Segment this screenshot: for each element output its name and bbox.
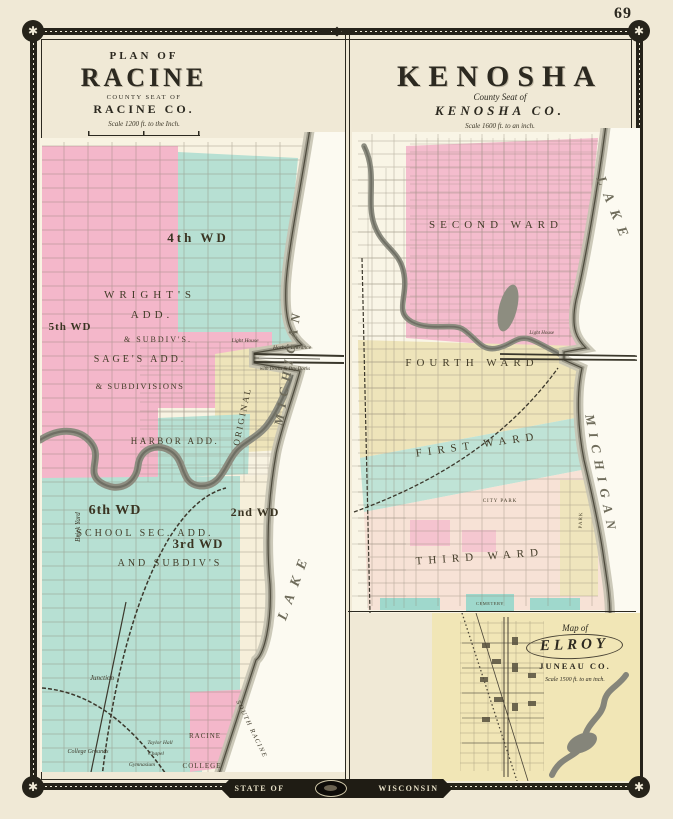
block <box>494 697 503 702</box>
rosette-glyph: ✱ <box>28 25 38 37</box>
label-sages-add: SAGE'S ADD. <box>94 354 187 365</box>
block <box>492 659 501 664</box>
racine-scale-text: Scale 1200 ft. to the Inch. <box>44 120 244 128</box>
racine-plan-of: PLAN OF <box>44 50 244 62</box>
pier-south <box>254 362 344 363</box>
elroy-title: ELROY <box>526 632 624 660</box>
label-racine-college-2: COLLEGE <box>183 762 222 770</box>
page-number: 69 <box>614 5 632 23</box>
label-harbor-add: HARBOR ADD. <box>131 436 220 446</box>
elroy-title-block: Map of ELROY JUNEAU CO. Scale 1500 ft. t… <box>516 623 634 683</box>
label-ward2: 2nd WD <box>231 505 280 519</box>
racine-title-block: PLAN OF RACINE COUNTY SEAT OF RACINE CO.… <box>44 50 244 136</box>
elroy-scale-text: Scale 1500 ft. to an inch. <box>516 677 634 683</box>
label-ward4: 4th WD <box>167 230 228 245</box>
racine-county-seat: COUNTY SEAT OF <box>44 94 244 101</box>
label-cemetery: CEMETERY <box>476 601 504 606</box>
kenosha-scale-text: Scale 1600 ft. to an inch. <box>385 122 615 130</box>
racine-title: RACINE <box>44 63 244 93</box>
label-park: PARK <box>579 511 585 528</box>
label-brick-yard: Brick Yard <box>74 512 82 542</box>
rosette-glyph: ✱ <box>634 781 644 793</box>
elroy-map-of: Map of <box>516 623 634 633</box>
kenosha-title-block: KENOSHA County Seat of KENOSHA CO. Scale… <box>385 60 615 130</box>
state-seal-icon <box>315 780 347 797</box>
label-wrights: WRIGHT'S <box>104 289 196 301</box>
atlas-page: ✱ ✱ ✱ ✱ ◆ 69 PLAN OF RACINE COUNTY SEAT … <box>0 0 673 819</box>
label-light-house: Light House <box>528 331 554 336</box>
label-ward5: 5th WD <box>49 321 92 333</box>
panel-divider-vertical <box>345 35 350 783</box>
rosette-glyph: ✱ <box>634 25 644 37</box>
block <box>482 643 490 648</box>
racine-county: RACINE CO. <box>44 102 244 117</box>
elroy-county: JUNEAU CO. <box>516 661 634 671</box>
banner-wisconsin: WISCONSIN <box>378 784 438 793</box>
kenosha-map-canvas: SECOND WARD FOURTH WARD FIRST WARD THIRD… <box>350 128 640 613</box>
rosette-icon: ✱ <box>628 20 650 42</box>
label-ward6: 6th WD <box>89 503 142 518</box>
label-second-ward: SECOND WARD <box>429 219 563 231</box>
label-city-park: CITY PARK <box>483 499 518 504</box>
label-fourth-ward: FOURTH WARD <box>405 357 538 369</box>
label-light-house: Light House <box>230 338 259 344</box>
label-and-subdivs: AND SUBDIV'S <box>118 558 223 569</box>
label-subdivs: & SUBDIV'S. <box>124 335 192 344</box>
label-subdivisions: & SUBDIVISIONS <box>96 381 185 391</box>
label-taylor-hall: Taylor Hall <box>147 740 173 746</box>
border-band-left <box>30 28 37 790</box>
rosette-icon: ✱ <box>628 776 650 798</box>
label-chapel: Chapel <box>148 751 164 757</box>
kenosha-county: KENOSHA CO. <box>385 103 615 119</box>
state-banner: STATE OF WISCONSIN <box>221 779 453 798</box>
block <box>528 701 536 706</box>
block <box>482 717 490 722</box>
label-college-grounds: College Grounds <box>68 749 110 755</box>
block <box>480 677 488 682</box>
elroy-inset: Map of ELROY JUNEAU CO. Scale 1500 ft. t… <box>432 613 640 781</box>
ornament-glyph: ◆ <box>332 23 342 39</box>
label-wrights-add: ADD. <box>131 309 174 321</box>
racine-scale-bar <box>88 131 200 136</box>
label-junction: Junction <box>90 674 115 682</box>
elroy-river <box>552 675 626 775</box>
label-ward3: 3rd WD <box>173 536 224 551</box>
block <box>512 703 518 711</box>
label-racine-college-1: RACINE <box>189 732 221 740</box>
top-center-ornament-icon: ◆ <box>318 20 356 42</box>
panel-divider-horizontal <box>348 611 636 612</box>
rosette-glyph: ✱ <box>28 781 38 793</box>
label-gymnasium: Gymnasium <box>129 762 155 768</box>
racine-map-canvas: 4th WD WRIGHT'S ADD. & SUBDIV'S. 5th WD … <box>40 132 345 772</box>
rosette-icon: ✱ <box>22 20 44 42</box>
banner-state-of: STATE OF <box>235 784 285 793</box>
rosette-icon: ✱ <box>22 776 44 798</box>
kenosha-title: KENOSHA <box>385 60 615 94</box>
